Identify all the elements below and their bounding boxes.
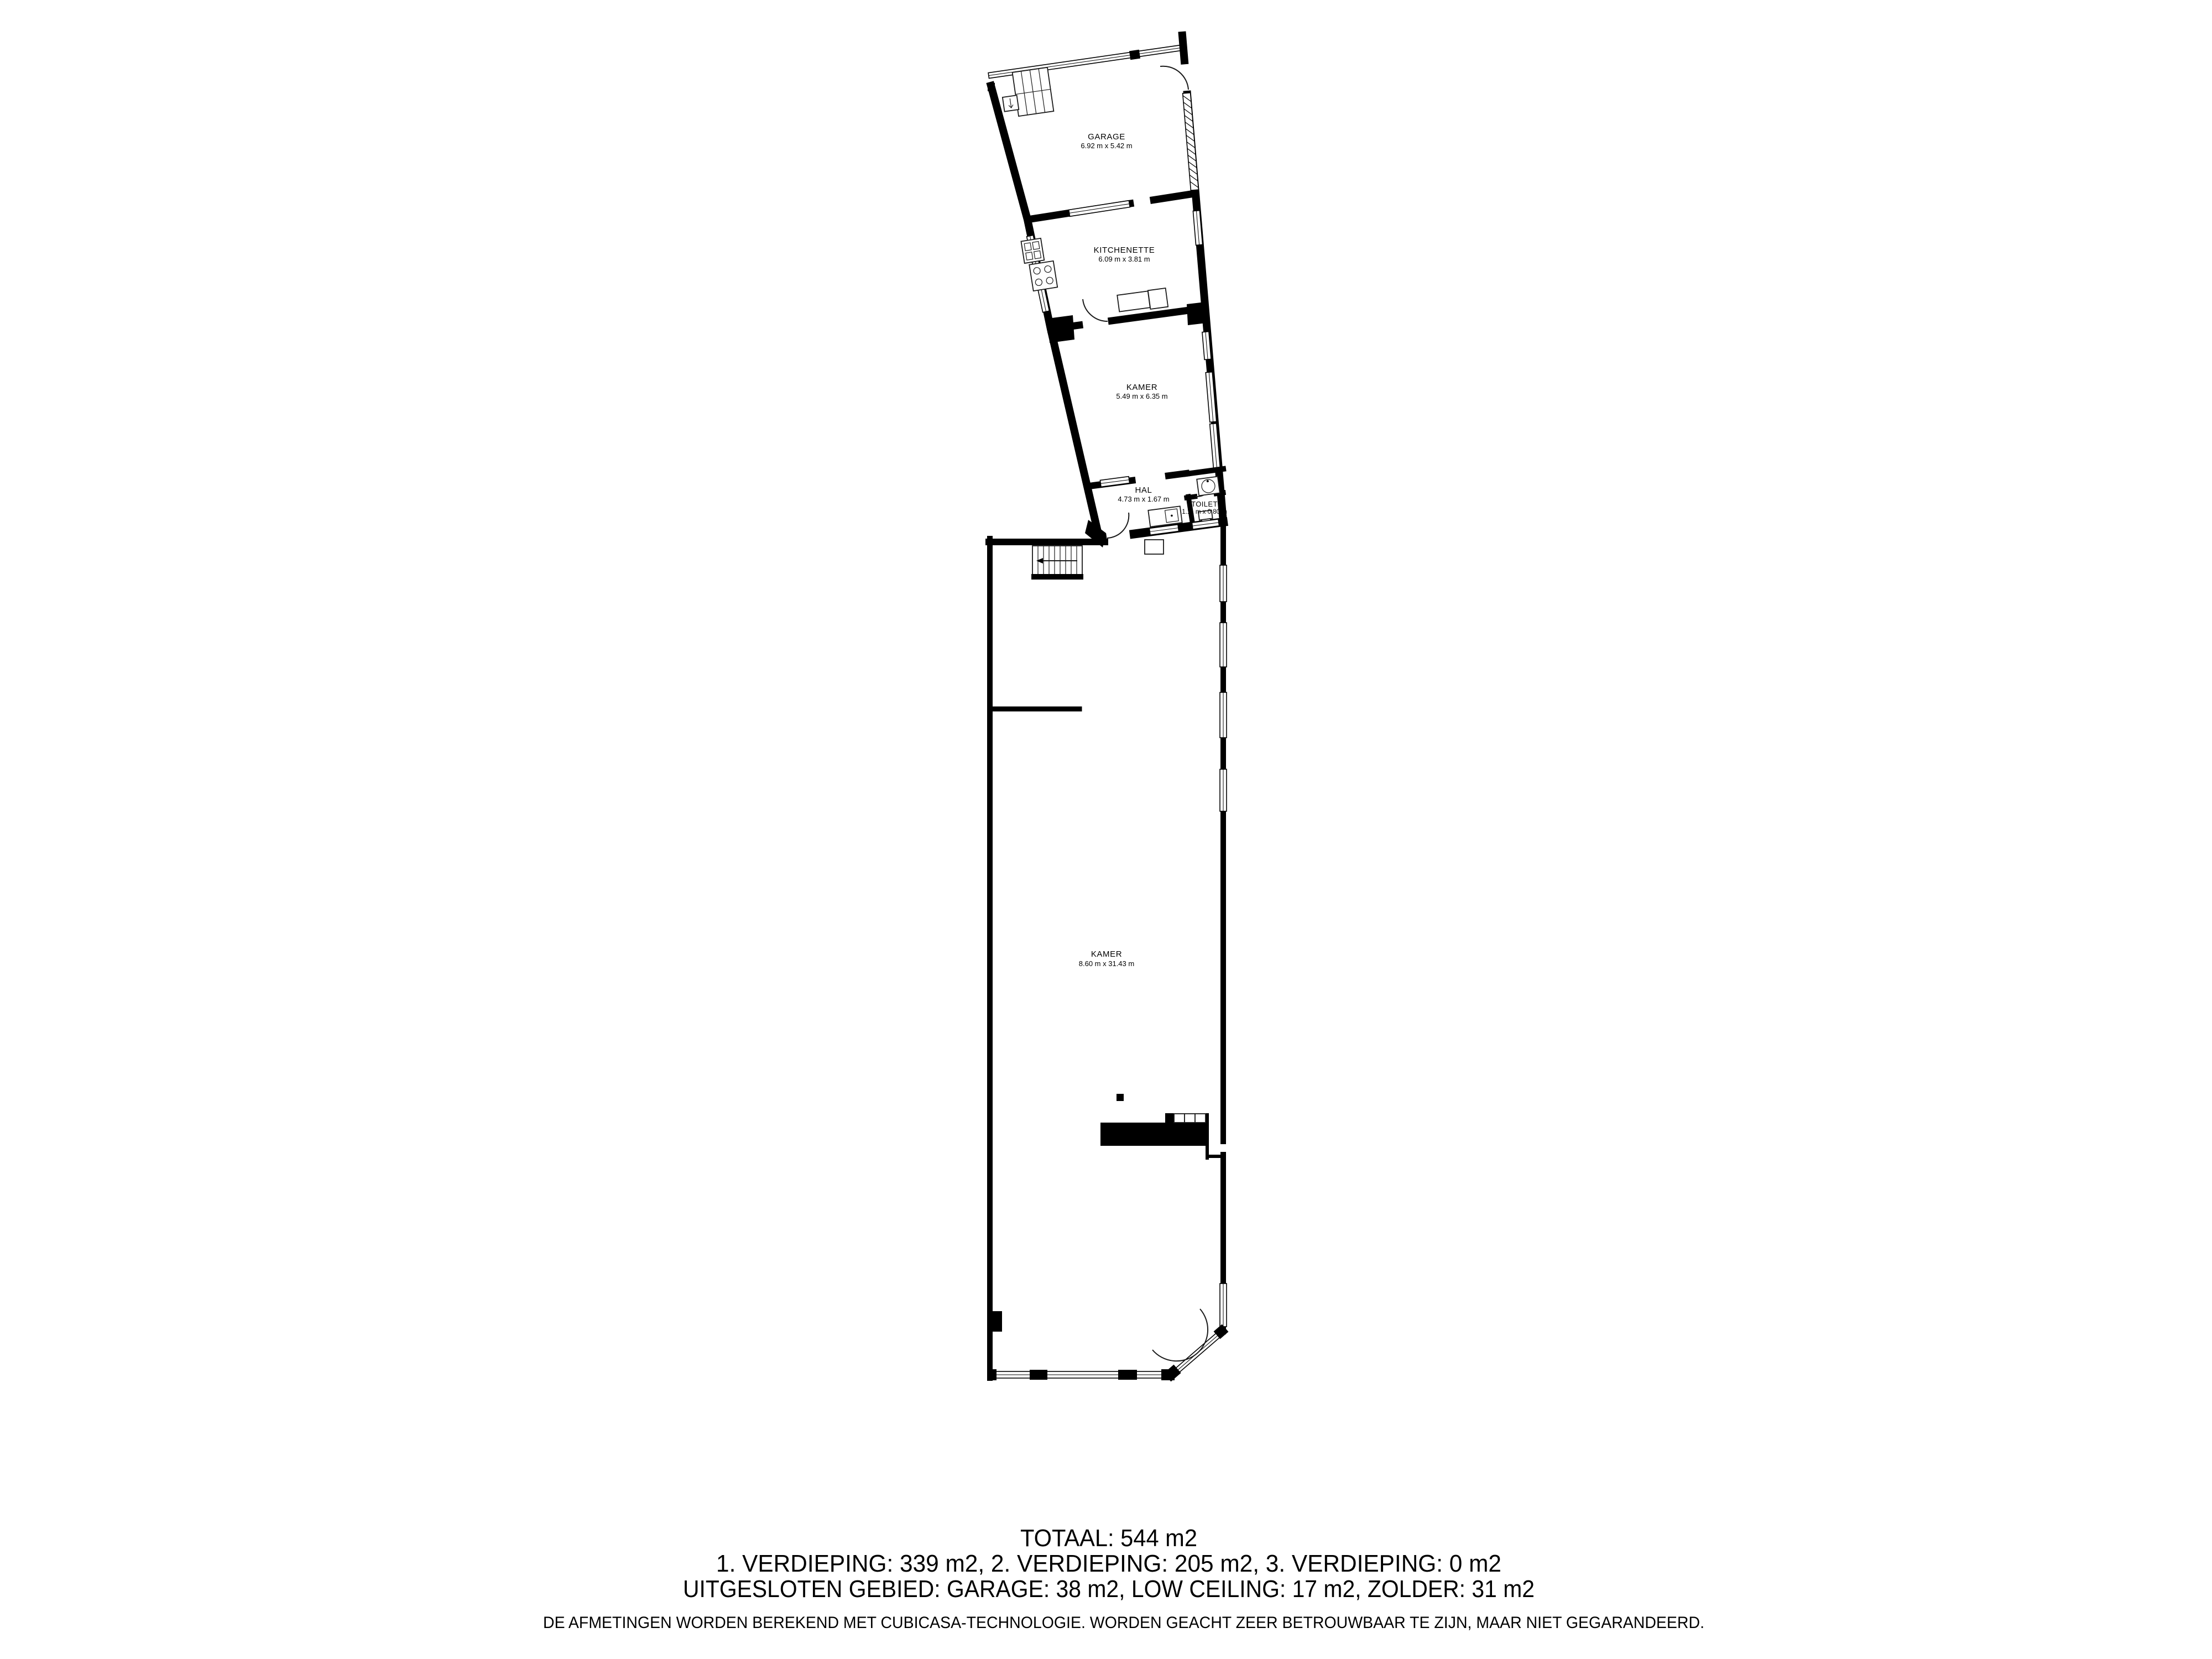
- wall-pier: [990, 1311, 1002, 1332]
- support-pillar: [1117, 1094, 1124, 1101]
- room-name: TOILET: [1191, 500, 1218, 508]
- lower-building: KAMER 8.60 m x 31.43 m: [988, 522, 1228, 1381]
- summary-block: TOTAAL: 544 m2 1. VERDIEPING: 339 m2, 2.…: [543, 1525, 1704, 1632]
- room-name: GARAGE: [1088, 132, 1125, 142]
- room-dims: 5.49 m x 6.35 m: [1116, 392, 1167, 400]
- room-dims: 1.11 m x 0.80 m: [1182, 509, 1227, 515]
- room-dims: 4.73 m x 1.67 m: [1118, 495, 1169, 503]
- room-name: HAL: [1135, 486, 1152, 495]
- window-band-icon: [1220, 623, 1227, 667]
- room-name: KITCHENETTE: [1094, 246, 1155, 255]
- kitchenette-furniture: [1117, 288, 1168, 312]
- counter-block: [1100, 1123, 1207, 1146]
- summary-total: TOTAAL: 544 m2: [1020, 1525, 1197, 1552]
- window-band-icon: [1220, 565, 1227, 602]
- floor-plan-canvas: GARAGE 6.92 m x 5.42 m KITCHENETTE 6.09 …: [0, 0, 2212, 1659]
- room-label-kamer-upper: KAMER 5.49 m x 6.35 m: [1116, 383, 1167, 400]
- upper-building: GARAGE 6.92 m x 5.42 m KITCHENETTE 6.09 …: [988, 35, 1227, 554]
- room-dims: 6.92 m x 5.42 m: [1081, 142, 1132, 150]
- kitchen-counter: [1021, 237, 1057, 291]
- room-dims: 6.09 m x 3.81 m: [1098, 255, 1150, 263]
- door-opening: [1133, 196, 1151, 207]
- window-band-icon: [1220, 1284, 1227, 1327]
- room-name: KAMER: [1126, 383, 1157, 392]
- window-band-icon: [1220, 692, 1227, 738]
- door-opening: [1135, 471, 1166, 484]
- window-band-icon: [1100, 477, 1129, 487]
- upper-right-openings: [1160, 64, 1220, 468]
- window-band-icon: [990, 1371, 1173, 1378]
- window-band-icon: [1192, 519, 1219, 529]
- washbasin-icon: [1197, 477, 1220, 496]
- counter-alcove: [1100, 1113, 1223, 1158]
- garage-door-hatch-icon: [1183, 93, 1199, 191]
- room-label-hal: HAL 4.73 m x 1.67 m: [1118, 486, 1169, 503]
- room-dims: 8.60 m x 31.43 m: [1079, 959, 1134, 968]
- window-band-icon: [1220, 769, 1227, 811]
- wall-segment: [1129, 50, 1140, 60]
- room-name: KAMER: [1091, 950, 1122, 959]
- summary-floors: 1. VERDIEPING: 339 m2, 2. VERDIEPING: 20…: [716, 1550, 1501, 1577]
- window-band-icon: [1069, 201, 1130, 217]
- stove-icon: [1029, 261, 1057, 291]
- lower-bottom-facade: [988, 1369, 1175, 1380]
- entry-step: [1145, 540, 1164, 554]
- room-label-kitchenette: KITCHENETTE 6.09 m x 3.81 m: [1094, 246, 1155, 263]
- room-label-kamer-lower: KAMER 8.60 m x 31.43 m: [1079, 950, 1134, 968]
- door-opening: [1106, 529, 1130, 542]
- door-opening: [1181, 64, 1193, 91]
- summary-excluded: UITGESLOTEN GEBIED: GARAGE: 38 m2, LOW C…: [683, 1575, 1535, 1603]
- wall-garage-kitchenette: [1027, 194, 1194, 220]
- disclaimer: DE AFMETINGEN WORDEN BEREKEND MET CUBICA…: [543, 1614, 1704, 1632]
- lower-staircase: [1031, 546, 1083, 580]
- room-label-garage: GARAGE 6.92 m x 5.42 m: [1081, 132, 1132, 150]
